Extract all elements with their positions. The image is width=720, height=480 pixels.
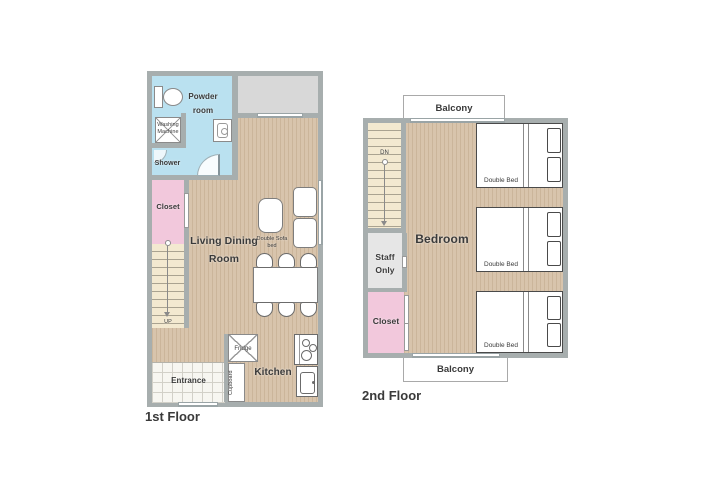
bathroom-sink — [213, 119, 232, 142]
stair-arrow-line — [167, 246, 168, 312]
pillow — [547, 157, 561, 182]
staff-only-label: Staff Only — [368, 251, 402, 277]
wall — [152, 175, 238, 180]
balcony-bottom-label: Balcony — [437, 364, 474, 375]
pillow — [547, 212, 561, 237]
gray-area — [238, 76, 318, 113]
stairs-down-label: DN — [368, 149, 401, 157]
ottoman — [258, 198, 283, 233]
stairs-up-label: UP — [152, 319, 184, 326]
kitchen-sink — [296, 366, 318, 397]
window — [257, 113, 303, 118]
pillow — [547, 128, 561, 153]
double-bed-label: Double Bed — [479, 177, 523, 185]
fridge-label: Fridge — [228, 345, 258, 353]
floor2-title: 2nd Floor — [362, 388, 421, 403]
closet-door-1f — [184, 193, 189, 228]
bed-fold-line — [523, 292, 524, 352]
wall — [368, 288, 407, 292]
washing-machine-label: Washing Machine — [155, 122, 181, 136]
sofa-cushion — [293, 218, 317, 248]
bed-fold-line — [523, 208, 524, 271]
closet-1f-label: Closet — [152, 202, 184, 212]
pillow — [547, 241, 561, 266]
floor-plan-image: Balcony Balcony Washing Mach — [0, 0, 720, 480]
cupboard-label: Cupboard — [228, 365, 245, 400]
stair-arrow-head — [164, 312, 170, 317]
bed-fold-line — [528, 208, 529, 271]
bed-fold-line — [528, 124, 529, 187]
floor1-title: 1st Floor — [145, 409, 200, 424]
double-bed-1: Double Bed — [476, 123, 563, 188]
dining-chair — [256, 253, 273, 268]
closet-2f-label: Closet — [368, 316, 404, 327]
wall — [401, 123, 406, 233]
stove — [294, 334, 318, 365]
entrance-label: Entrance — [152, 376, 225, 387]
double-bed-2: Double Bed — [476, 207, 563, 272]
stair-arrow-line — [384, 165, 385, 221]
window — [412, 353, 500, 358]
living-dining-label: Living Dining Room — [188, 232, 260, 269]
balcony-bottom: Balcony — [403, 356, 508, 382]
dining-chair — [256, 302, 273, 317]
toilet-tank — [154, 86, 163, 108]
closet-door-2f — [404, 295, 409, 351]
sofa-bed-label: Double Sofa bed — [254, 236, 290, 250]
dining-chair — [300, 302, 317, 317]
wall — [368, 228, 406, 233]
entrance-door — [178, 402, 218, 407]
pillow — [547, 323, 561, 347]
double-bed-label: Double Bed — [479, 342, 523, 350]
floor2-plan: DN Staff Only Closet Bedroom Double Bed … — [363, 118, 568, 358]
kitchen-label: Kitchen — [245, 366, 301, 380]
dining-chair — [300, 253, 317, 268]
stair-arrow-start — [382, 159, 388, 165]
sofa-cushion — [293, 187, 317, 217]
wall — [232, 76, 238, 180]
bed-fold-line — [528, 292, 529, 352]
double-bed-3: Double Bed — [476, 291, 563, 353]
floor1-plan: Washing Machine Shower Powder room Close… — [147, 71, 323, 407]
pillow — [547, 296, 561, 320]
double-bed-label: Double Bed — [479, 261, 523, 269]
stair-arrow-start — [165, 240, 171, 246]
bed-fold-line — [523, 124, 524, 187]
powder-room-label: Powder room — [180, 90, 226, 117]
dining-table — [253, 267, 318, 303]
wall — [181, 113, 186, 146]
shower-label: Shower — [152, 159, 183, 168]
bedroom-label: Bedroom — [408, 231, 476, 247]
dining-chair — [278, 302, 295, 317]
balcony-top-label: Balcony — [436, 103, 473, 114]
window — [318, 180, 323, 245]
wall — [152, 143, 186, 148]
staff-room-door — [402, 256, 407, 268]
dining-chair — [278, 253, 295, 268]
stair-arrow-head — [381, 221, 387, 226]
